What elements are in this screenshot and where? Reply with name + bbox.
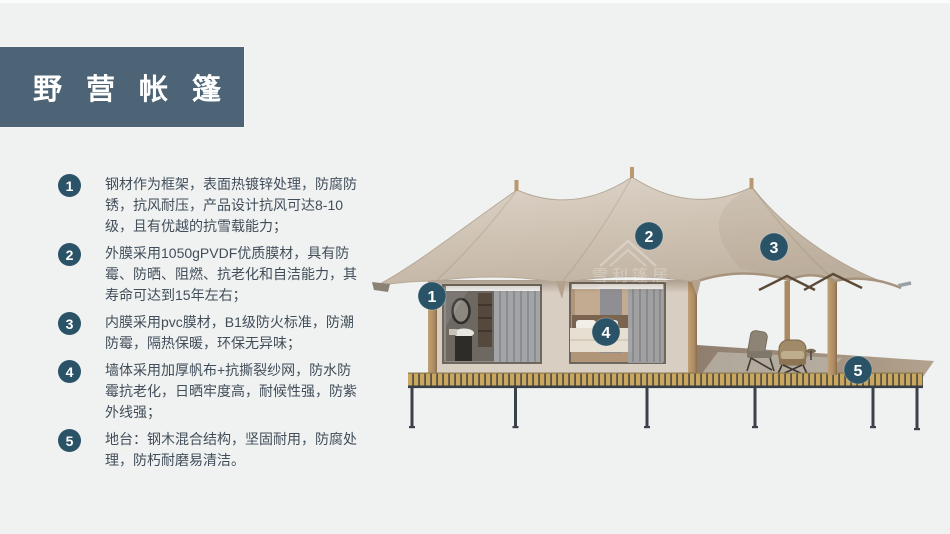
feature-text: 地台：钢木混合结构，坚固耐用，防腐处理，防朽耐磨易清洁。 <box>105 429 359 471</box>
slide: 野营帐篷 1 钢材作为框架，表面热镀锌处理，防腐防锈，抗风耐压，产品设计抗风可达… <box>0 0 950 534</box>
figure-badge-3: 3 <box>760 233 788 261</box>
figure-badge-2: 2 <box>635 222 663 250</box>
feature-number-badge: 5 <box>58 429 81 452</box>
feature-item-2: 2 外膜采用1050gPVDF优质膜材，具有防霉、防晒、阻燃、抗老化和自洁能力，… <box>58 243 370 306</box>
deck-legs <box>409 388 920 430</box>
svg-text:1: 1 <box>428 289 437 306</box>
page-title: 野营帐篷 <box>0 66 245 108</box>
figure-badge-1: 1 <box>418 282 446 310</box>
feature-text: 墙体采用加厚帆布+抗撕裂纱网，防水防霉抗老化，日晒牢度高，耐候性强，防紫外线强； <box>105 360 359 423</box>
svg-text:5: 5 <box>854 363 863 380</box>
wall-post-right <box>688 280 697 376</box>
steel-beam <box>408 386 923 389</box>
feature-item-3: 3 内膜采用pvc膜材，B1级防火标准，防潮防霉，隔热保暖，环保无异味； <box>58 312 370 354</box>
feature-text: 内膜采用pvc膜材，B1级防火标准，防潮防霉，隔热保暖，环保无异味； <box>105 312 359 354</box>
feature-list: 1 钢材作为框架，表面热镀锌处理，防腐防锈，抗风耐压，产品设计抗风可达8-10级… <box>58 174 370 477</box>
feature-text: 钢材作为框架，表面热镀锌处理，防腐防锈，抗风耐压，产品设计抗风可达8-10级，且… <box>105 174 359 237</box>
watermark-text: 雪利篷居 <box>592 266 672 285</box>
peak-pole <box>630 167 634 178</box>
tip-bracket-right <box>898 281 911 287</box>
feature-item-1: 1 钢材作为框架，表面热镀锌处理，防腐防锈，抗风耐压，产品设计抗风可达8-10级… <box>58 174 370 237</box>
window-bedroom <box>570 283 665 363</box>
feature-item-5: 5 地台：钢木混合结构，坚固耐用，防腐处理，防朽耐磨易清洁。 <box>58 429 370 471</box>
feature-number-badge: 1 <box>58 174 81 197</box>
feature-item-4: 4 墙体采用加厚帆布+抗撕裂纱网，防水防霉抗老化，日晒牢度高，耐候性强，防紫外线… <box>58 360 370 423</box>
feature-number-badge: 2 <box>58 243 81 266</box>
title-block: 野营帐篷 <box>0 47 244 127</box>
porch <box>697 281 934 377</box>
porch-post-front <box>828 278 838 375</box>
peak-pole <box>750 178 754 189</box>
svg-text:4: 4 <box>602 325 611 342</box>
figure-badge-5: 5 <box>844 356 872 384</box>
window-bathroom <box>443 285 541 363</box>
tent-render-figure: 雪利篷居 1 2 3 4 <box>370 150 950 445</box>
slide-top-edge <box>0 0 950 3</box>
figure-badge-4: 4 <box>592 318 620 346</box>
feature-number-badge: 4 <box>58 360 81 383</box>
feature-number-badge: 3 <box>58 312 81 335</box>
deck-platform <box>408 373 923 431</box>
feature-text: 外膜采用1050gPVDF优质膜材，具有防霉、防晒、阻燃、抗老化和自洁能力，其寿… <box>105 243 359 306</box>
svg-text:2: 2 <box>645 229 654 246</box>
svg-text:3: 3 <box>770 240 779 257</box>
peak-pole <box>515 180 519 191</box>
